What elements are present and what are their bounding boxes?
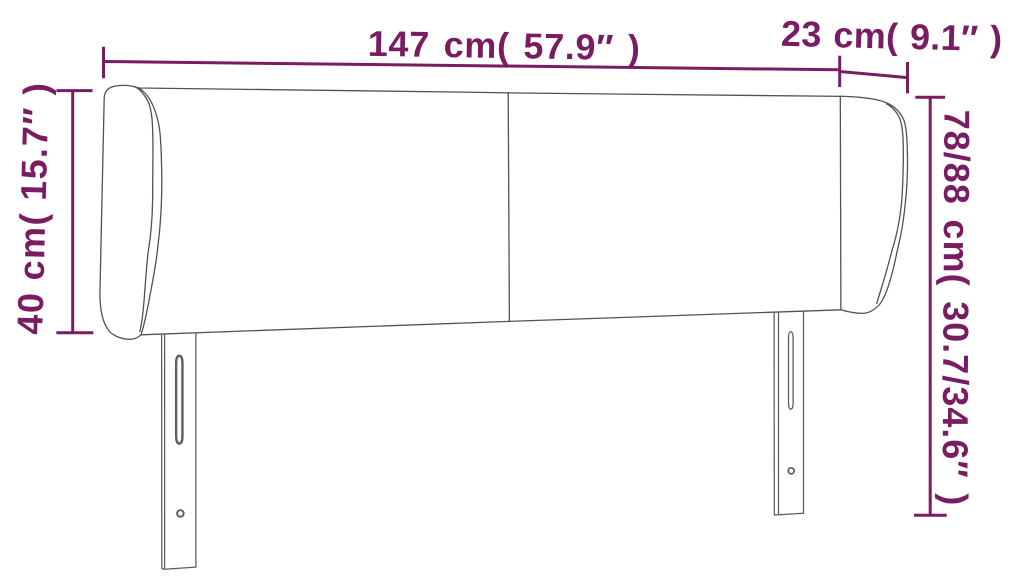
svg-text:78/88 cm( 30.7/34.6″ ): 78/88 cm( 30.7/34.6″ ) bbox=[934, 110, 977, 507]
svg-text:40 cm( 15.7″ ): 40 cm( 15.7″ ) bbox=[9, 81, 57, 335]
svg-text:23 cm( 9.1″ ): 23 cm( 9.1″ ) bbox=[781, 13, 1003, 59]
svg-text:147 cm( 57.9″ ): 147 cm( 57.9″ ) bbox=[368, 23, 641, 68]
